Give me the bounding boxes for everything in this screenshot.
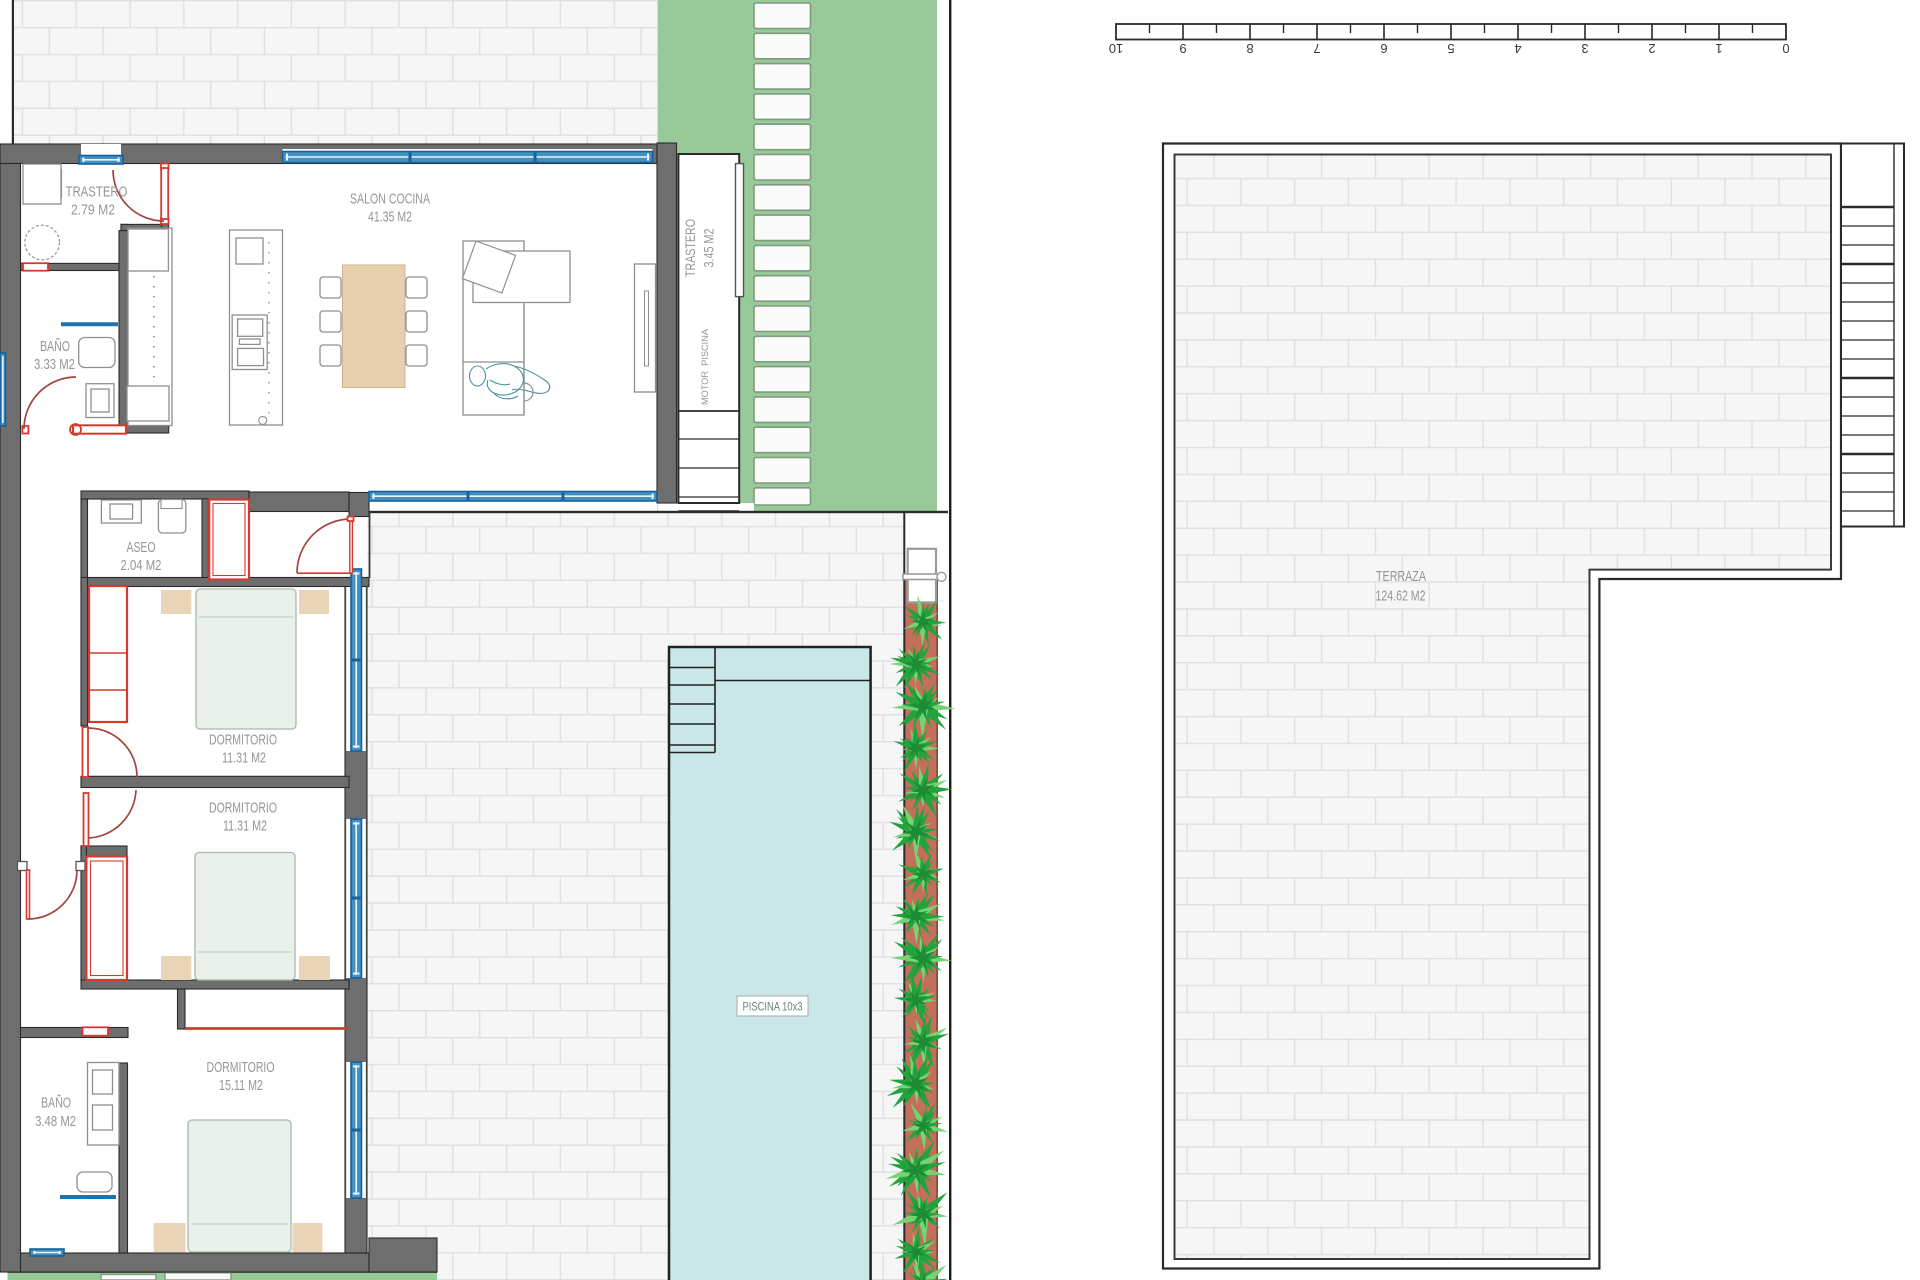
svg-text:1: 1 [1715, 41, 1722, 56]
svg-text:6: 6 [1380, 41, 1387, 56]
svg-text:DORMITORIO: DORMITORIO [209, 732, 277, 749]
svg-text:11.31 M2: 11.31 M2 [223, 818, 267, 835]
svg-text:10: 10 [1109, 41, 1123, 56]
svg-text:0: 0 [1782, 41, 1789, 56]
svg-text:11.31 M2: 11.31 M2 [222, 750, 266, 767]
svg-text:41.35 M2: 41.35 M2 [368, 209, 412, 226]
svg-text:2: 2 [1648, 41, 1655, 56]
svg-text:TERRAZA: TERRAZA [1376, 568, 1426, 585]
svg-text:3: 3 [1581, 41, 1588, 56]
svg-text:ASEO: ASEO [127, 539, 156, 556]
svg-text:DORMITORIO: DORMITORIO [207, 1059, 275, 1076]
svg-text:3.33 M2: 3.33 M2 [34, 356, 75, 373]
svg-text:BAÑO: BAÑO [40, 338, 70, 355]
svg-text:3.48 M2: 3.48 M2 [35, 1113, 76, 1130]
svg-text:TRASTERO: TRASTERO [66, 184, 128, 201]
svg-text:MOTOR PISCINA: MOTOR PISCINA [700, 329, 710, 405]
svg-text:DORMITORIO: DORMITORIO [209, 800, 277, 817]
svg-text:4: 4 [1514, 41, 1521, 56]
svg-text:2.79 M2: 2.79 M2 [71, 202, 115, 219]
svg-text:7: 7 [1313, 41, 1320, 56]
svg-text:9: 9 [1179, 41, 1186, 56]
svg-text:SALON COCINA: SALON COCINA [350, 191, 430, 208]
svg-text:BAÑO: BAÑO [41, 1095, 71, 1112]
svg-text:8: 8 [1246, 41, 1253, 56]
svg-text:124.62 M2: 124.62 M2 [1376, 588, 1426, 605]
svg-text:3.45 M2: 3.45 M2 [702, 229, 717, 268]
svg-text:15.11 M2: 15.11 M2 [219, 1077, 263, 1094]
svg-text:TRASTERO: TRASTERO [683, 219, 698, 277]
svg-text:PISCINA 10x3: PISCINA 10x3 [743, 1002, 803, 1014]
svg-text:2.04 M2: 2.04 M2 [121, 557, 162, 574]
svg-text:5: 5 [1447, 41, 1454, 56]
